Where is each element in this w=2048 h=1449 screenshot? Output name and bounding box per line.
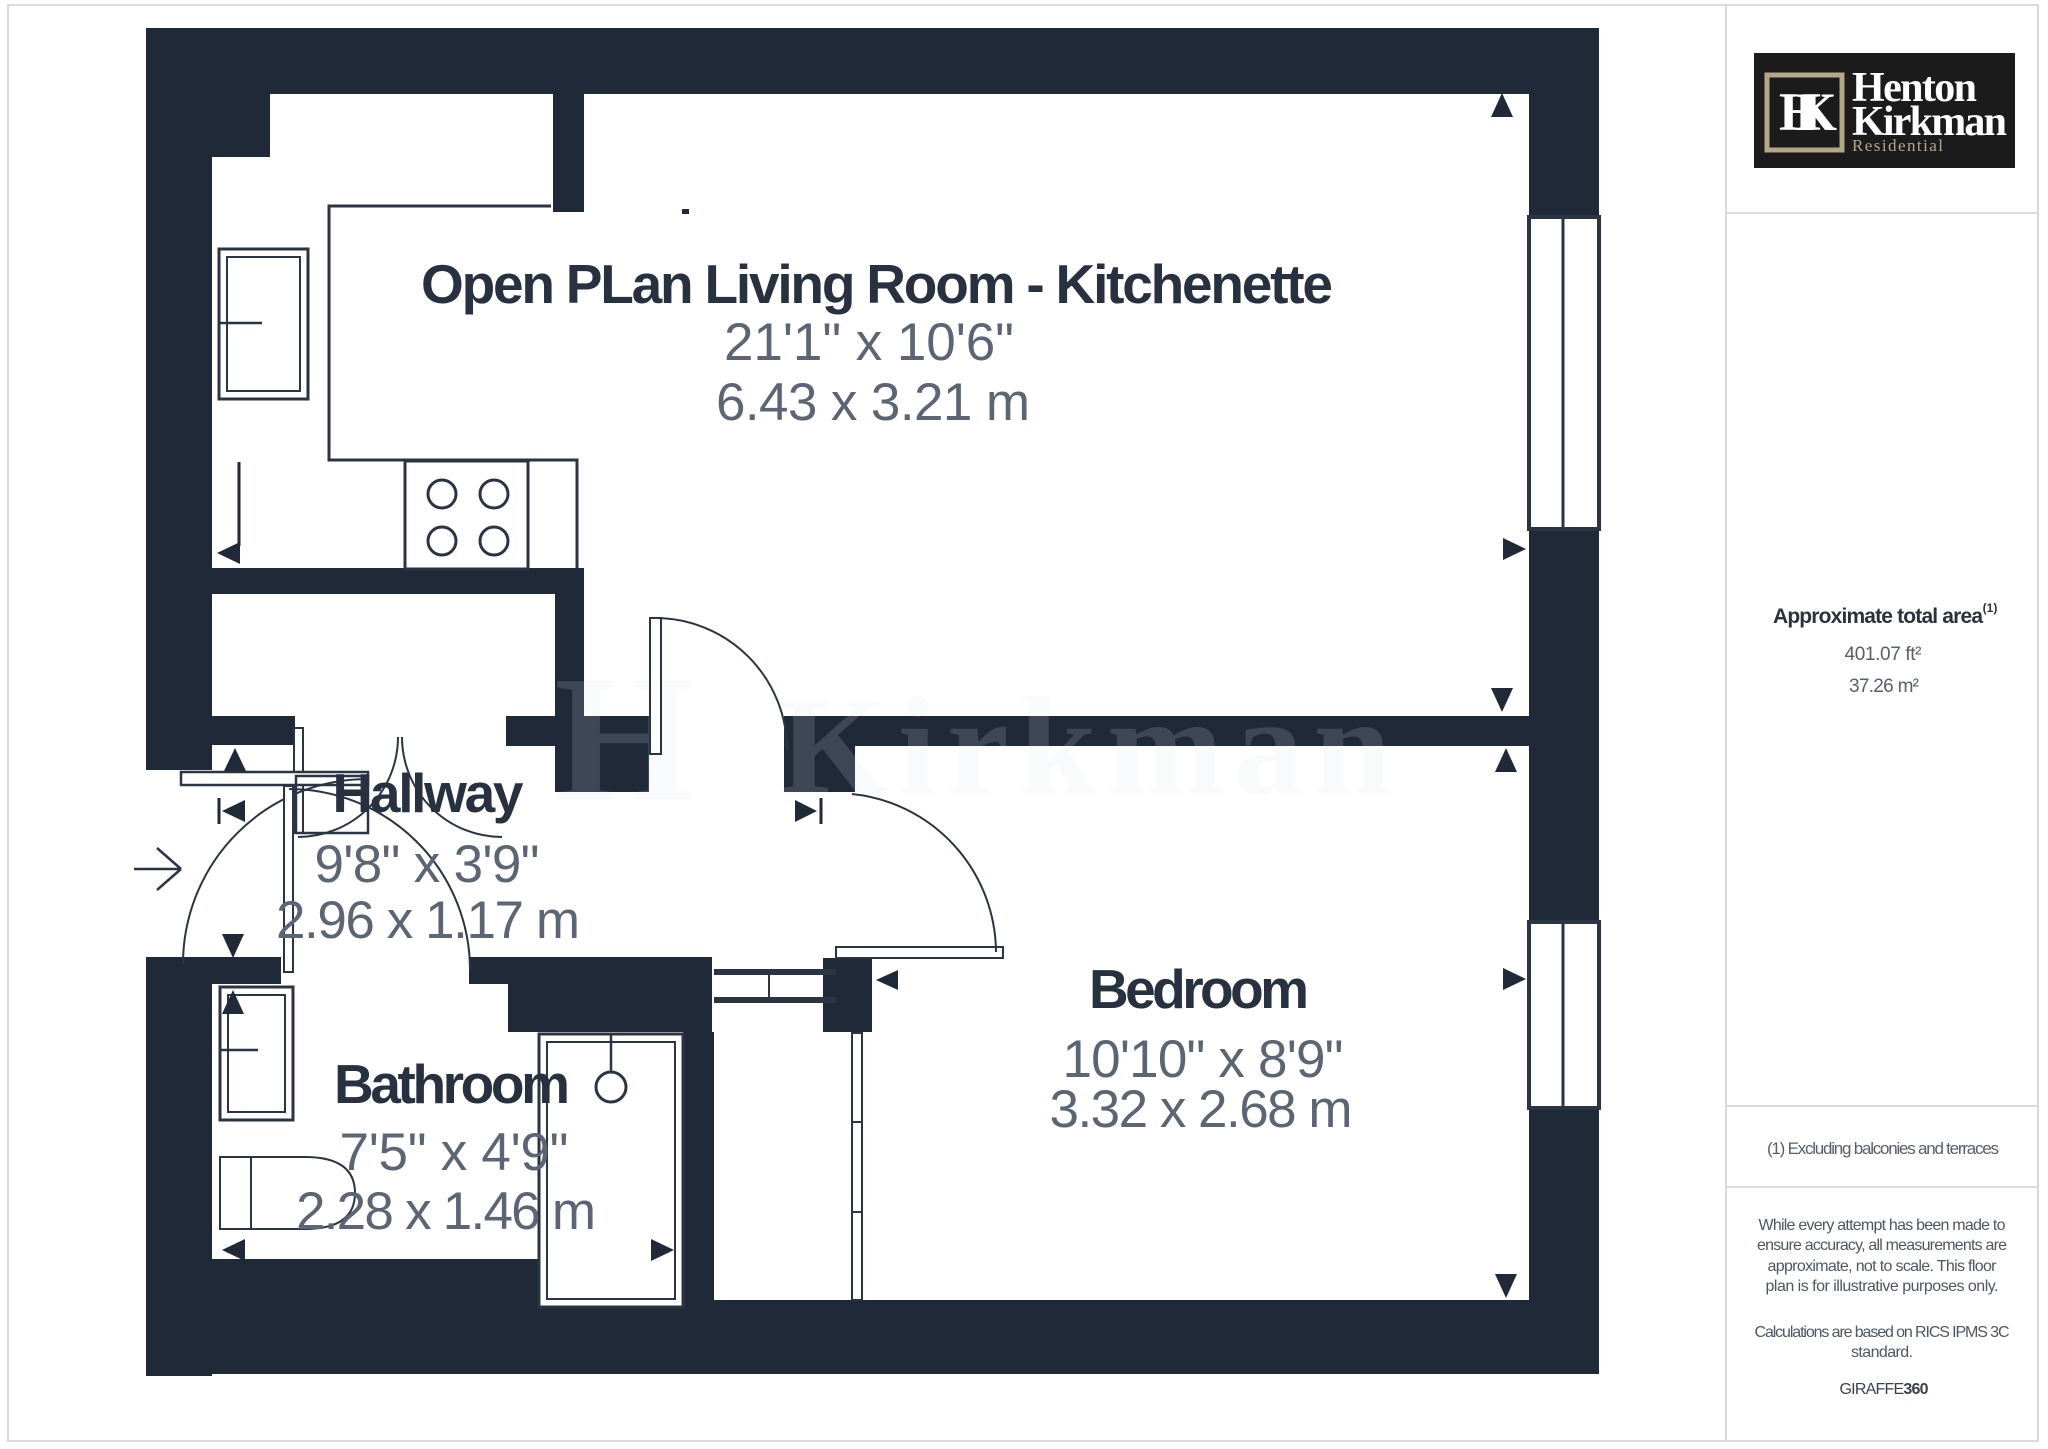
svg-text:401.07 ft²: 401.07 ft² [1845, 644, 1922, 665]
svg-text:ensure accuracy, all measureme: ensure accuracy, all measurements are [1757, 1237, 2007, 1254]
svg-text:(1) Excluding balconies and te: (1) Excluding balconies and terraces [1767, 1139, 1999, 1158]
svg-text:Bedroom: Bedroom [1089, 958, 1309, 1020]
svg-text:While every attempt has been m: While every attempt has been made to [1759, 1217, 2006, 1234]
svg-text:2.28 x 1.46 m: 2.28 x 1.46 m [296, 1182, 596, 1241]
svg-text:H: H [554, 639, 694, 838]
svg-text:Calculations are based on RICS: Calculations are based on RICS IPMS 3C [1755, 1324, 2010, 1341]
svg-text:7'5" x 4'9": 7'5" x 4'9" [340, 1123, 569, 1182]
svg-text:2.96 x 1.17 m: 2.96 x 1.17 m [276, 891, 580, 950]
svg-text:Open PLan Living Room - Kitche: Open PLan Living Room - Kitchenette [421, 253, 1333, 315]
svg-text:6.43 x 3.21 m: 6.43 x 3.21 m [716, 373, 1030, 432]
svg-text:standard.: standard. [1851, 1344, 1913, 1361]
svg-text:9'8" x 3'9": 9'8" x 3'9" [315, 835, 540, 894]
svg-text:37.26 m²: 37.26 m² [1849, 676, 1919, 697]
svg-text:Residential: Residential [1852, 136, 1945, 155]
svg-text:approximate, not to scale. Thi: approximate, not to scale. This floor [1768, 1258, 1998, 1275]
svg-text:Hallway: Hallway [333, 762, 524, 824]
svg-text:Kirkman: Kirkman [779, 669, 1401, 824]
svg-text:plan is for illustrative purpo: plan is for illustrative purposes only. [1766, 1278, 1999, 1295]
svg-text:Bathroom: Bathroom [334, 1053, 570, 1115]
svg-text:GIRAFFE360: GIRAFFE360 [1840, 1381, 1929, 1398]
svg-text:3.32 x 2.68 m: 3.32 x 2.68 m [1050, 1080, 1353, 1139]
svg-text:21'1" x 10'6": 21'1" x 10'6" [724, 313, 1014, 372]
svg-text:(1): (1) [1983, 601, 1998, 615]
svg-text:Approximate total area: Approximate total area [1773, 605, 1983, 628]
